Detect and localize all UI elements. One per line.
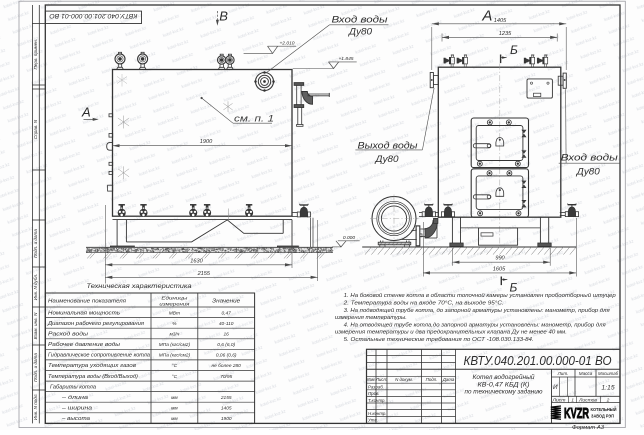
svg-text:Н.контр.: Н.контр. [368,411,387,416]
svg-text:м3/ч: м3/ч [170,332,180,338]
svg-text:1235: 1235 [499,31,512,37]
svg-text:°С: °С [172,363,178,369]
svg-text:– высота: – высота [61,416,90,422]
svg-text:мм: мм [171,407,178,412]
svg-text:KVZR: KVZR [564,406,589,422]
svg-text:МВт: МВт [169,310,180,316]
svg-text:16: 16 [224,332,230,338]
svg-text:2. Температура воды на входе: 2. Температура воды на входе 70°С, на вы… [343,301,504,307]
svg-text:Масса: Масса [579,371,593,376]
svg-text:по техническому заданию: по техническому заданию [465,388,543,396]
svg-text:Диапазон рабочего регулировани: Диапазон рабочего регулирования [47,321,145,327]
svg-text:Листов: Листов [578,397,598,402]
svg-text:измерения: измерения [159,303,190,308]
svg-text:1:15: 1:15 [601,385,614,392]
svg-text:1900: 1900 [200,139,213,145]
svg-text:2155: 2155 [197,271,211,277]
svg-text:Перв. примен.: Перв. примен. [33,39,38,70]
svg-text:1. На боковой стенке котла в: 1. На боковой стенке котла в области топ… [344,292,616,299]
svg-text:измерения температуры и два пр: измерения температуры и два предохраните… [335,330,567,336]
svg-text:3. На подводящей трубе котла,: 3. На подводящей трубе котла, до запорно… [344,307,610,314]
svg-text:Разраб.: Разраб. [368,385,384,390]
svg-text:1405: 1405 [494,18,507,24]
svg-text:0,47: 0,47 [222,310,232,316]
svg-text:4. На отводящей трубе котла,д: 4. На отводящей трубе котла,до запорной … [344,321,606,328]
svg-text:Подп.: Подп. [426,377,438,382]
svg-text:Инв. N дубл.: Инв. N дубл. [33,274,38,301]
svg-text:Масштаб: Масштаб [598,371,618,376]
svg-text:5. Остальные технические треб: 5. Остальные технические требования по О… [344,337,534,343]
svg-text:МПа (кгс/см2): МПа (кгс/см2) [159,353,191,359]
svg-text:Наименование показателя: Наименование показателя [48,299,126,305]
svg-text:Единицы: Единицы [161,296,188,302]
svg-text:N докум.: N докум. [395,377,413,382]
svg-text:Габариты котла: Габариты котла [50,384,96,390]
svg-text:+1.845: +1.845 [338,56,353,62]
svg-text:Расход воды: Расход воды [48,332,88,338]
svg-text:Лист: Лист [551,397,565,402]
svg-text:0,6 (6,0): 0,6 (6,0) [217,342,235,348]
svg-text:Пров.: Пров. [368,391,380,396]
svg-text:Котел водогрейный: Котел водогрейный [473,373,535,381]
svg-text:Выход воды: Выход воды [358,141,418,151]
svg-text:+2.010: +2.010 [279,40,294,46]
svg-text:Значение: Значение [212,299,240,305]
svg-text:см. п. 1: см. п. 1 [234,114,274,124]
svg-text:Вход воды: Вход воды [561,153,618,163]
svg-text:И: И [553,384,558,391]
svg-text:КВТУ.040.201.00.000-01 ВО: КВТУ.040.201.00.000-01 ВО [49,12,138,19]
svg-text:мм: мм [171,396,178,401]
svg-text:– длина: – длина [61,395,89,401]
svg-text:Температура воды (Вход/Выход): Температура воды (Вход/Выход) [48,374,138,380]
svg-text:Утв.: Утв. [368,418,378,423]
svg-text:Б: Б [510,43,518,57]
svg-text:измерения температуры.: измерения температуры. [335,315,407,321]
svg-text:МПа (кгс/см2): МПа (кгс/см2) [159,342,191,348]
svg-text:не более 280: не более 280 [212,363,242,369]
svg-text:°С: °С [172,374,178,380]
svg-text:0,06 (0,6): 0,06 (0,6) [216,353,237,359]
svg-text:КВТУ.040.201.00.000-01 ВО: КВТУ.040.201.00.000-01 ВО [464,353,612,368]
svg-text:Подп. и дата: Подп. и дата [33,353,38,382]
svg-text:Т.контр.: Т.контр. [368,398,386,403]
svg-text:1900: 1900 [221,416,232,422]
svg-text:А: А [481,8,492,25]
svg-text:Ду80: Ду80 [348,26,373,36]
svg-text:Дата: Дата [442,377,455,382]
svg-text:40-110: 40-110 [219,321,234,327]
svg-text:0.000: 0.000 [343,235,356,241]
svg-text:Изм.: Изм. [366,377,375,382]
svg-text:Температура уходящих газов: Температура уходящих газов [48,363,136,369]
svg-text:Б: Б [510,280,518,294]
svg-text:ЗАВОД РЭП: ЗАВОД РЭП [591,414,614,419]
svg-text:Взам. инв. N: Взам. инв. N [33,312,38,339]
svg-text:КОТЕЛЬНЫЙ: КОТЕЛЬНЫЙ [591,407,617,412]
svg-text:Лит.: Лит. [557,371,569,376]
svg-text:Вход воды: Вход воды [332,14,388,24]
svg-text:Техническая характеристика: Техническая характеристика [87,283,193,290]
svg-text:Справ. N: Справ. N [33,119,38,139]
svg-text:Формат А3: Формат А3 [572,425,604,430]
svg-text:КВ-0,47 КБД (К): КВ-0,47 КБД (К) [478,381,530,388]
svg-text:Ду80: Ду80 [576,166,601,176]
svg-text:990: 990 [495,256,505,262]
svg-text:1630: 1630 [190,258,203,264]
svg-text:А: А [81,105,91,120]
svg-text:1405: 1405 [221,406,232,412]
svg-text:Номинальная мощность: Номинальная мощность [48,310,120,316]
svg-text:%: % [172,321,177,327]
svg-text:Лист: Лист [375,377,388,382]
svg-text:Подп. и дата: Подп. и дата [33,229,38,258]
svg-text:1605: 1605 [493,266,506,272]
svg-text:– ширина: – ширина [61,406,93,412]
svg-text:2: 2 [606,397,610,402]
svg-text:70/95: 70/95 [220,374,232,380]
svg-text:В: В [219,9,228,24]
svg-text:1: 1 [571,397,574,402]
svg-text:Гидравлическое сопротивление к: Гидравлическое сопротивление котла [48,353,150,359]
svg-text:Инв. N подл.: Инв. N подл. [33,393,38,420]
svg-text:Рабочее давление воды: Рабочее давление воды [48,342,120,348]
svg-text:Ду80: Ду80 [374,154,399,164]
svg-text:мм: мм [171,417,178,422]
svg-text:2155: 2155 [220,395,232,401]
